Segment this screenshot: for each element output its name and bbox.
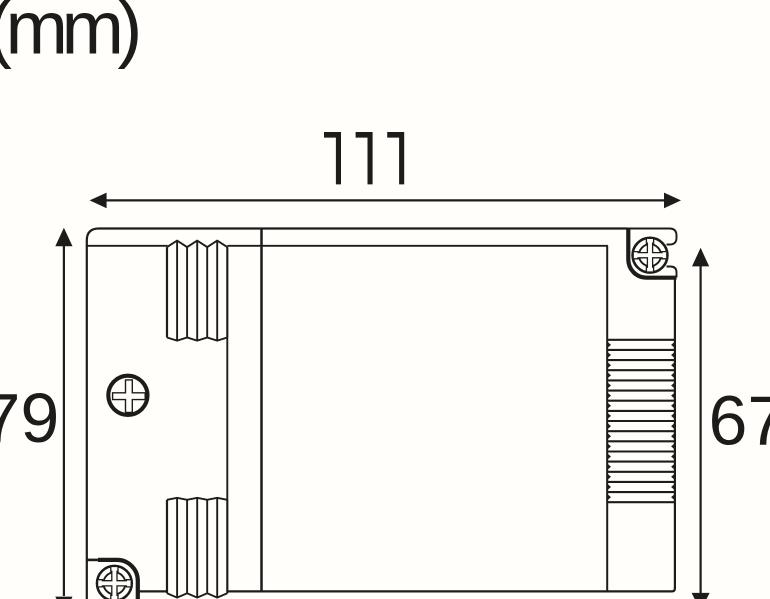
svg-text:79: 79 xyxy=(0,379,59,457)
svg-text:(mm): (mm) xyxy=(0,0,138,70)
svg-text:67: 67 xyxy=(709,382,770,460)
